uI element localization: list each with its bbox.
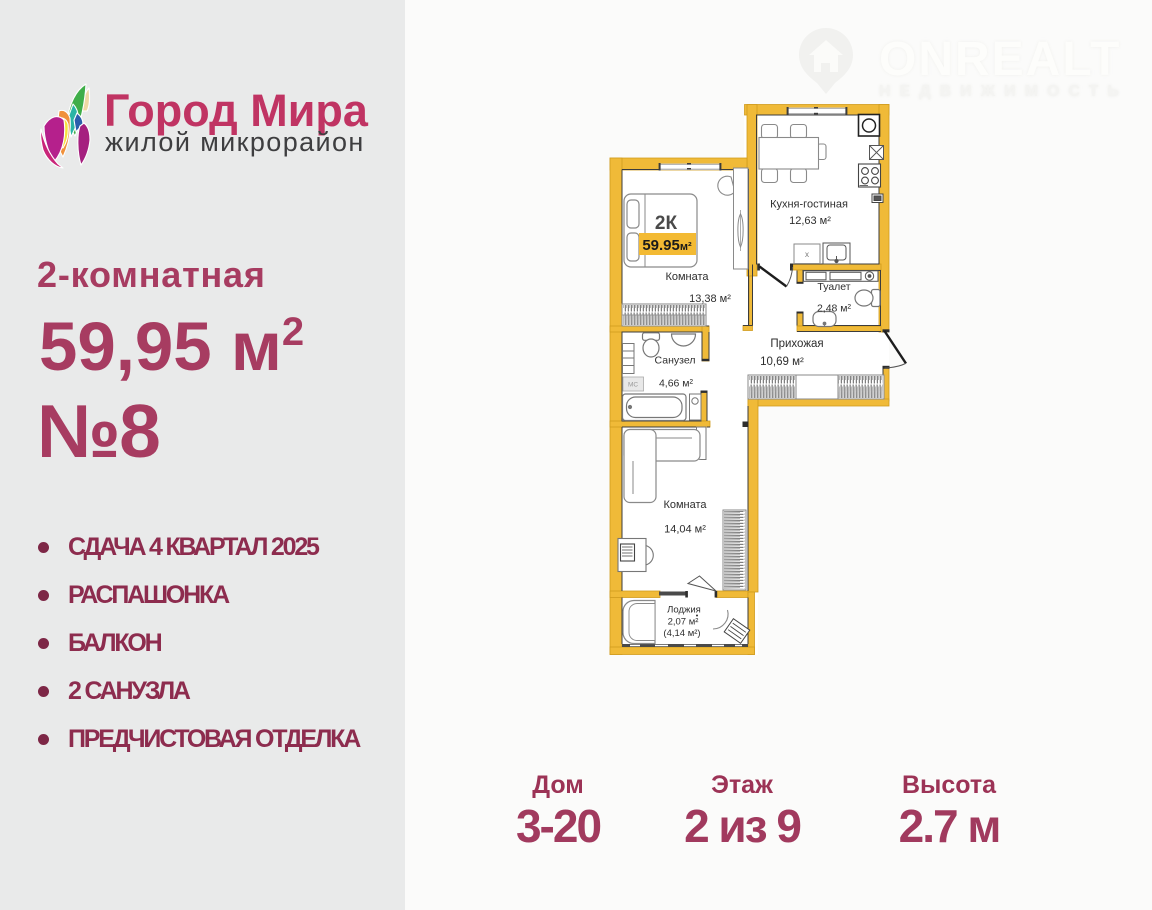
svg-text:4,66 м²: 4,66 м²: [659, 378, 694, 390]
svg-text:Лоджия: Лоджия: [667, 605, 701, 616]
svg-text:x: x: [805, 250, 809, 259]
svg-text:14,04 м²: 14,04 м²: [664, 524, 706, 536]
svg-text:Кухня-гостиная: Кухня-гостиная: [770, 199, 848, 211]
svg-text:Туалет: Туалет: [817, 281, 850, 293]
svg-text:ONREALT: ONREALT: [879, 33, 1121, 86]
svg-text:10,69 м²: 10,69 м²: [760, 356, 804, 368]
svg-text:Комната: Комната: [663, 499, 707, 511]
svg-text:Комната: Комната: [665, 271, 709, 283]
svg-text:2,07 м²: 2,07 м²: [668, 617, 699, 628]
svg-text:Прихожая: Прихожая: [770, 338, 823, 350]
svg-text:12,63 м²: 12,63 м²: [789, 215, 831, 227]
svg-text:Санузел: Санузел: [655, 355, 696, 367]
svg-text:МС: МС: [628, 382, 638, 389]
svg-text:2,48 м²: 2,48 м²: [817, 303, 852, 315]
svg-text:13,38 м²: 13,38 м²: [689, 293, 731, 305]
svg-text:(4,14 м²): (4,14 м²): [663, 628, 700, 639]
svg-text:2К: 2К: [655, 213, 678, 234]
